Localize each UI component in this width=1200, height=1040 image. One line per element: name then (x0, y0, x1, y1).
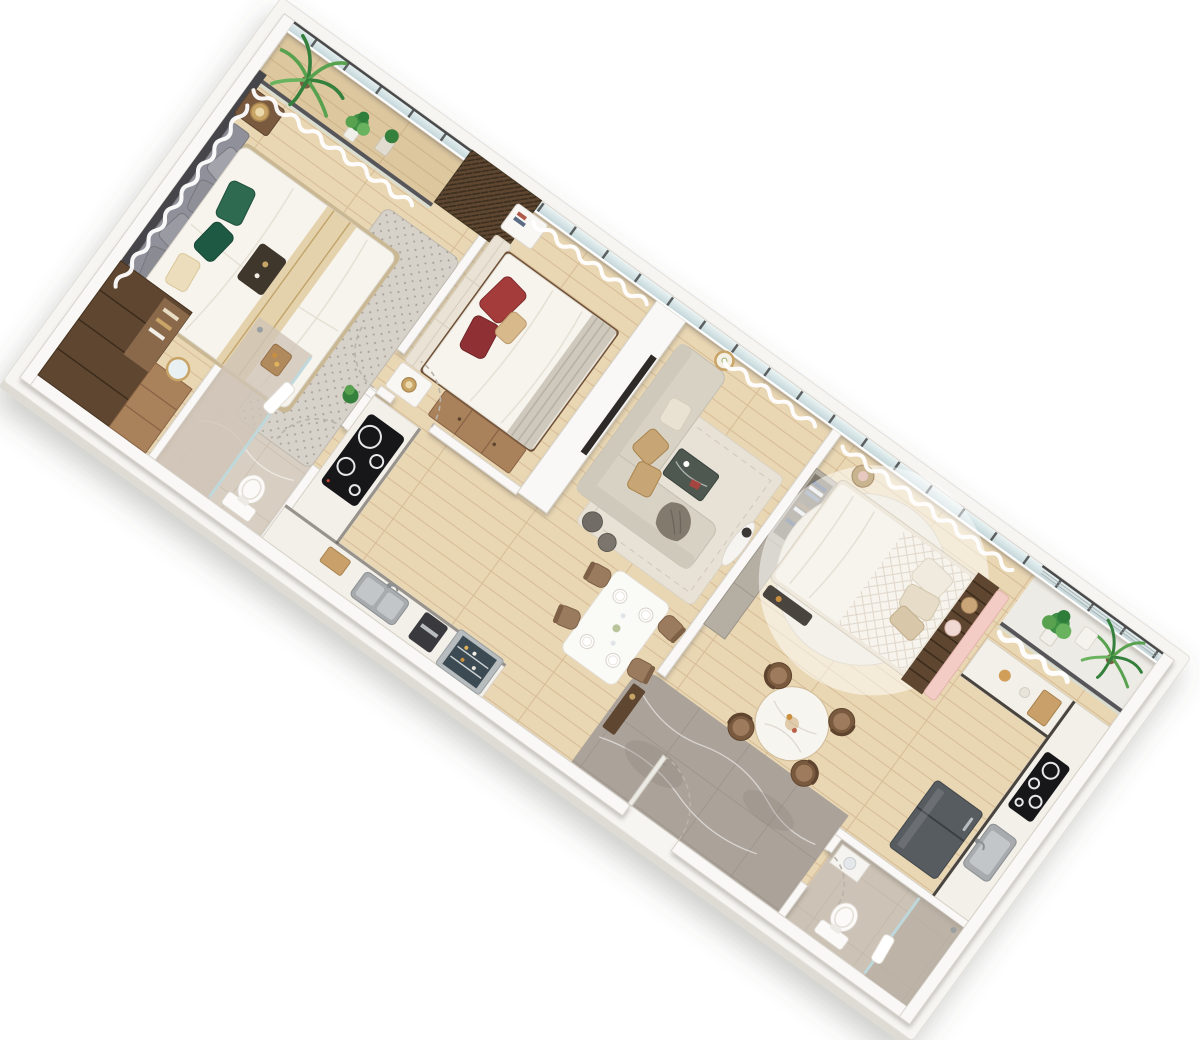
screenshot-canvas: { "scene": { "type": "apartment-3d-floor… (0, 0, 1200, 1040)
rotated-scene (0, 0, 1191, 1040)
floor-plan-render (0, 0, 1200, 1040)
